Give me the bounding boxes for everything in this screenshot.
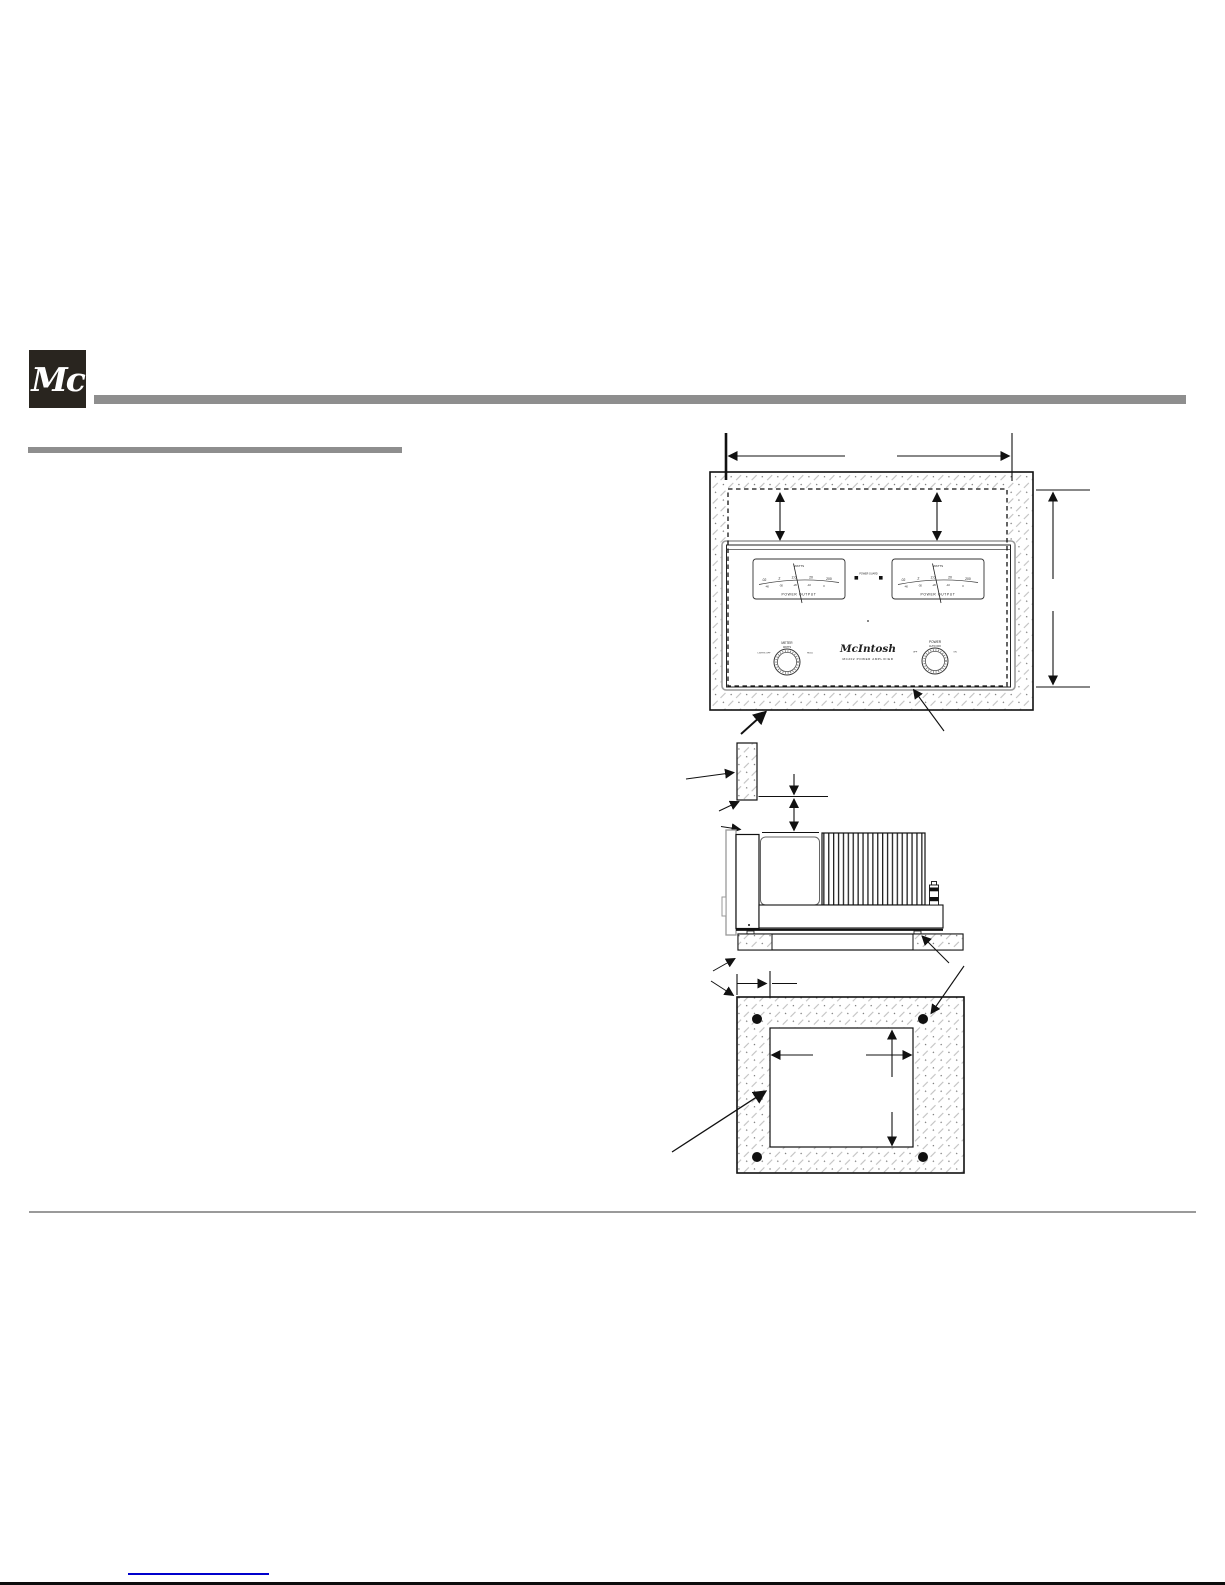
chassis-front-block xyxy=(736,835,759,929)
shelf-left-leader xyxy=(713,959,735,972)
panel-center-dot xyxy=(867,620,869,622)
model-caption-text: MC202 POWER AMPLIFIER xyxy=(843,657,894,661)
front-panel-side xyxy=(726,830,736,935)
svg-text:.02: .02 xyxy=(762,578,767,582)
amplifier-front-panel: WATTS .02 .2 2.0 20 200 -40 -30 -20 -10 … xyxy=(722,541,1015,690)
svg-text:WATTS: WATTS xyxy=(933,564,943,568)
shelf-top-view-drawing xyxy=(672,966,964,1173)
panel-cross-section-leader xyxy=(686,773,734,780)
transformer-cover xyxy=(761,837,820,905)
svg-text:2.0: 2.0 xyxy=(792,575,797,579)
svg-text:OFF: OFF xyxy=(913,652,918,654)
svg-text:.2: .2 xyxy=(778,576,781,580)
svg-text:200: 200 xyxy=(826,577,832,581)
front-edge-leader-lower xyxy=(721,827,741,830)
svg-text:-30: -30 xyxy=(779,584,783,588)
svg-text:-30: -30 xyxy=(918,584,922,588)
svg-text:LIGHTS OFF: LIGHTS OFF xyxy=(758,653,772,655)
svg-text:20: 20 xyxy=(948,576,952,580)
front-panel-handle xyxy=(722,897,726,916)
rear-connector xyxy=(930,882,939,906)
svg-text:200: 200 xyxy=(965,577,971,581)
power-output-meter-left: WATTS .02 .2 2.0 20 200 -40 -30 -20 -10 … xyxy=(753,559,845,603)
svg-text:METER: METER xyxy=(781,641,793,645)
amplifier-side-profile xyxy=(722,830,943,935)
chassis-dot xyxy=(748,924,750,926)
side-view-drawing xyxy=(686,743,963,971)
svg-text:-40: -40 xyxy=(904,585,908,589)
shelf-corner-leader xyxy=(711,981,734,996)
brand-script-text: McIntosh xyxy=(839,643,896,655)
footer-link[interactable] xyxy=(128,1573,269,1575)
front-edge-leader-upper xyxy=(719,802,739,812)
svg-text:ON: ON xyxy=(953,652,957,654)
chassis-base xyxy=(759,905,943,928)
meter-watts-title: WATTS xyxy=(794,564,804,568)
manual-page: Mc xyxy=(0,0,1225,1585)
svg-text:.2: .2 xyxy=(917,576,920,580)
svg-text:-10: -10 xyxy=(946,583,950,587)
svg-text:2.0: 2.0 xyxy=(931,575,936,579)
svg-text:POWER OUTPUT: POWER OUTPUT xyxy=(921,593,956,597)
svg-text:-40: -40 xyxy=(765,585,769,589)
height-dimension xyxy=(1036,490,1090,687)
svg-text:-10: -10 xyxy=(807,583,811,587)
svg-text:-20: -20 xyxy=(932,583,936,587)
panel-leader-arrow xyxy=(741,712,766,735)
panel-cross-section xyxy=(737,743,757,800)
svg-text:HOLD: HOLD xyxy=(807,653,813,655)
front-view-drawing: WATTS .02 .2 2.0 20 200 -40 -30 -20 -10 … xyxy=(710,433,1090,734)
shelf-cross-section xyxy=(738,934,963,950)
footer-divider xyxy=(29,1211,1196,1213)
shelf-overlap-dimension xyxy=(737,971,797,1000)
vertical-clearance-dimension xyxy=(759,774,829,833)
svg-text:20: 20 xyxy=(809,576,813,580)
svg-text:POWER GUARD: POWER GUARD xyxy=(859,573,878,576)
heatsink-fins xyxy=(822,833,925,905)
svg-text:POWER: POWER xyxy=(929,640,942,644)
svg-text:-20: -20 xyxy=(793,583,797,587)
power-output-meter-right: WATTS .02 .2 2.0 20 200 -40 -30 -20 -10 … xyxy=(892,559,984,603)
svg-text:.02: .02 xyxy=(901,578,906,582)
meter-caption: POWER OUTPUT xyxy=(782,593,817,597)
installation-drawings: WATTS .02 .2 2.0 20 200 -40 -30 -20 -10 … xyxy=(0,0,1225,1585)
